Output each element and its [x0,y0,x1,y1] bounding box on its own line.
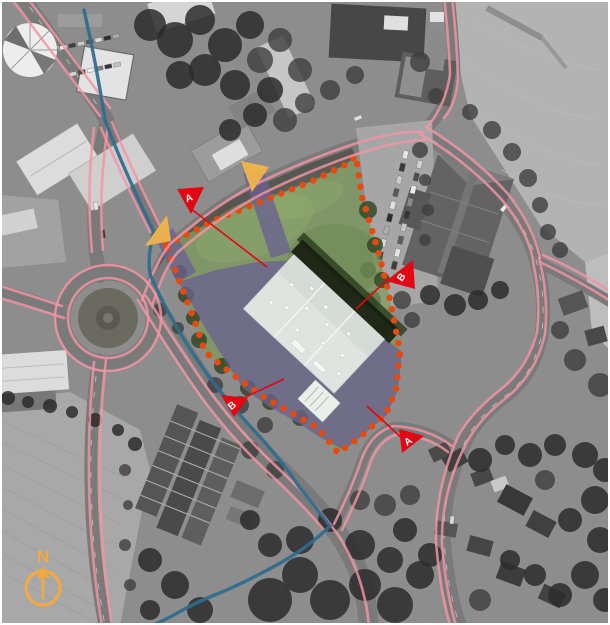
north-label: N [37,547,49,566]
aerial-map[interactable]: A B B A N [0,0,610,625]
